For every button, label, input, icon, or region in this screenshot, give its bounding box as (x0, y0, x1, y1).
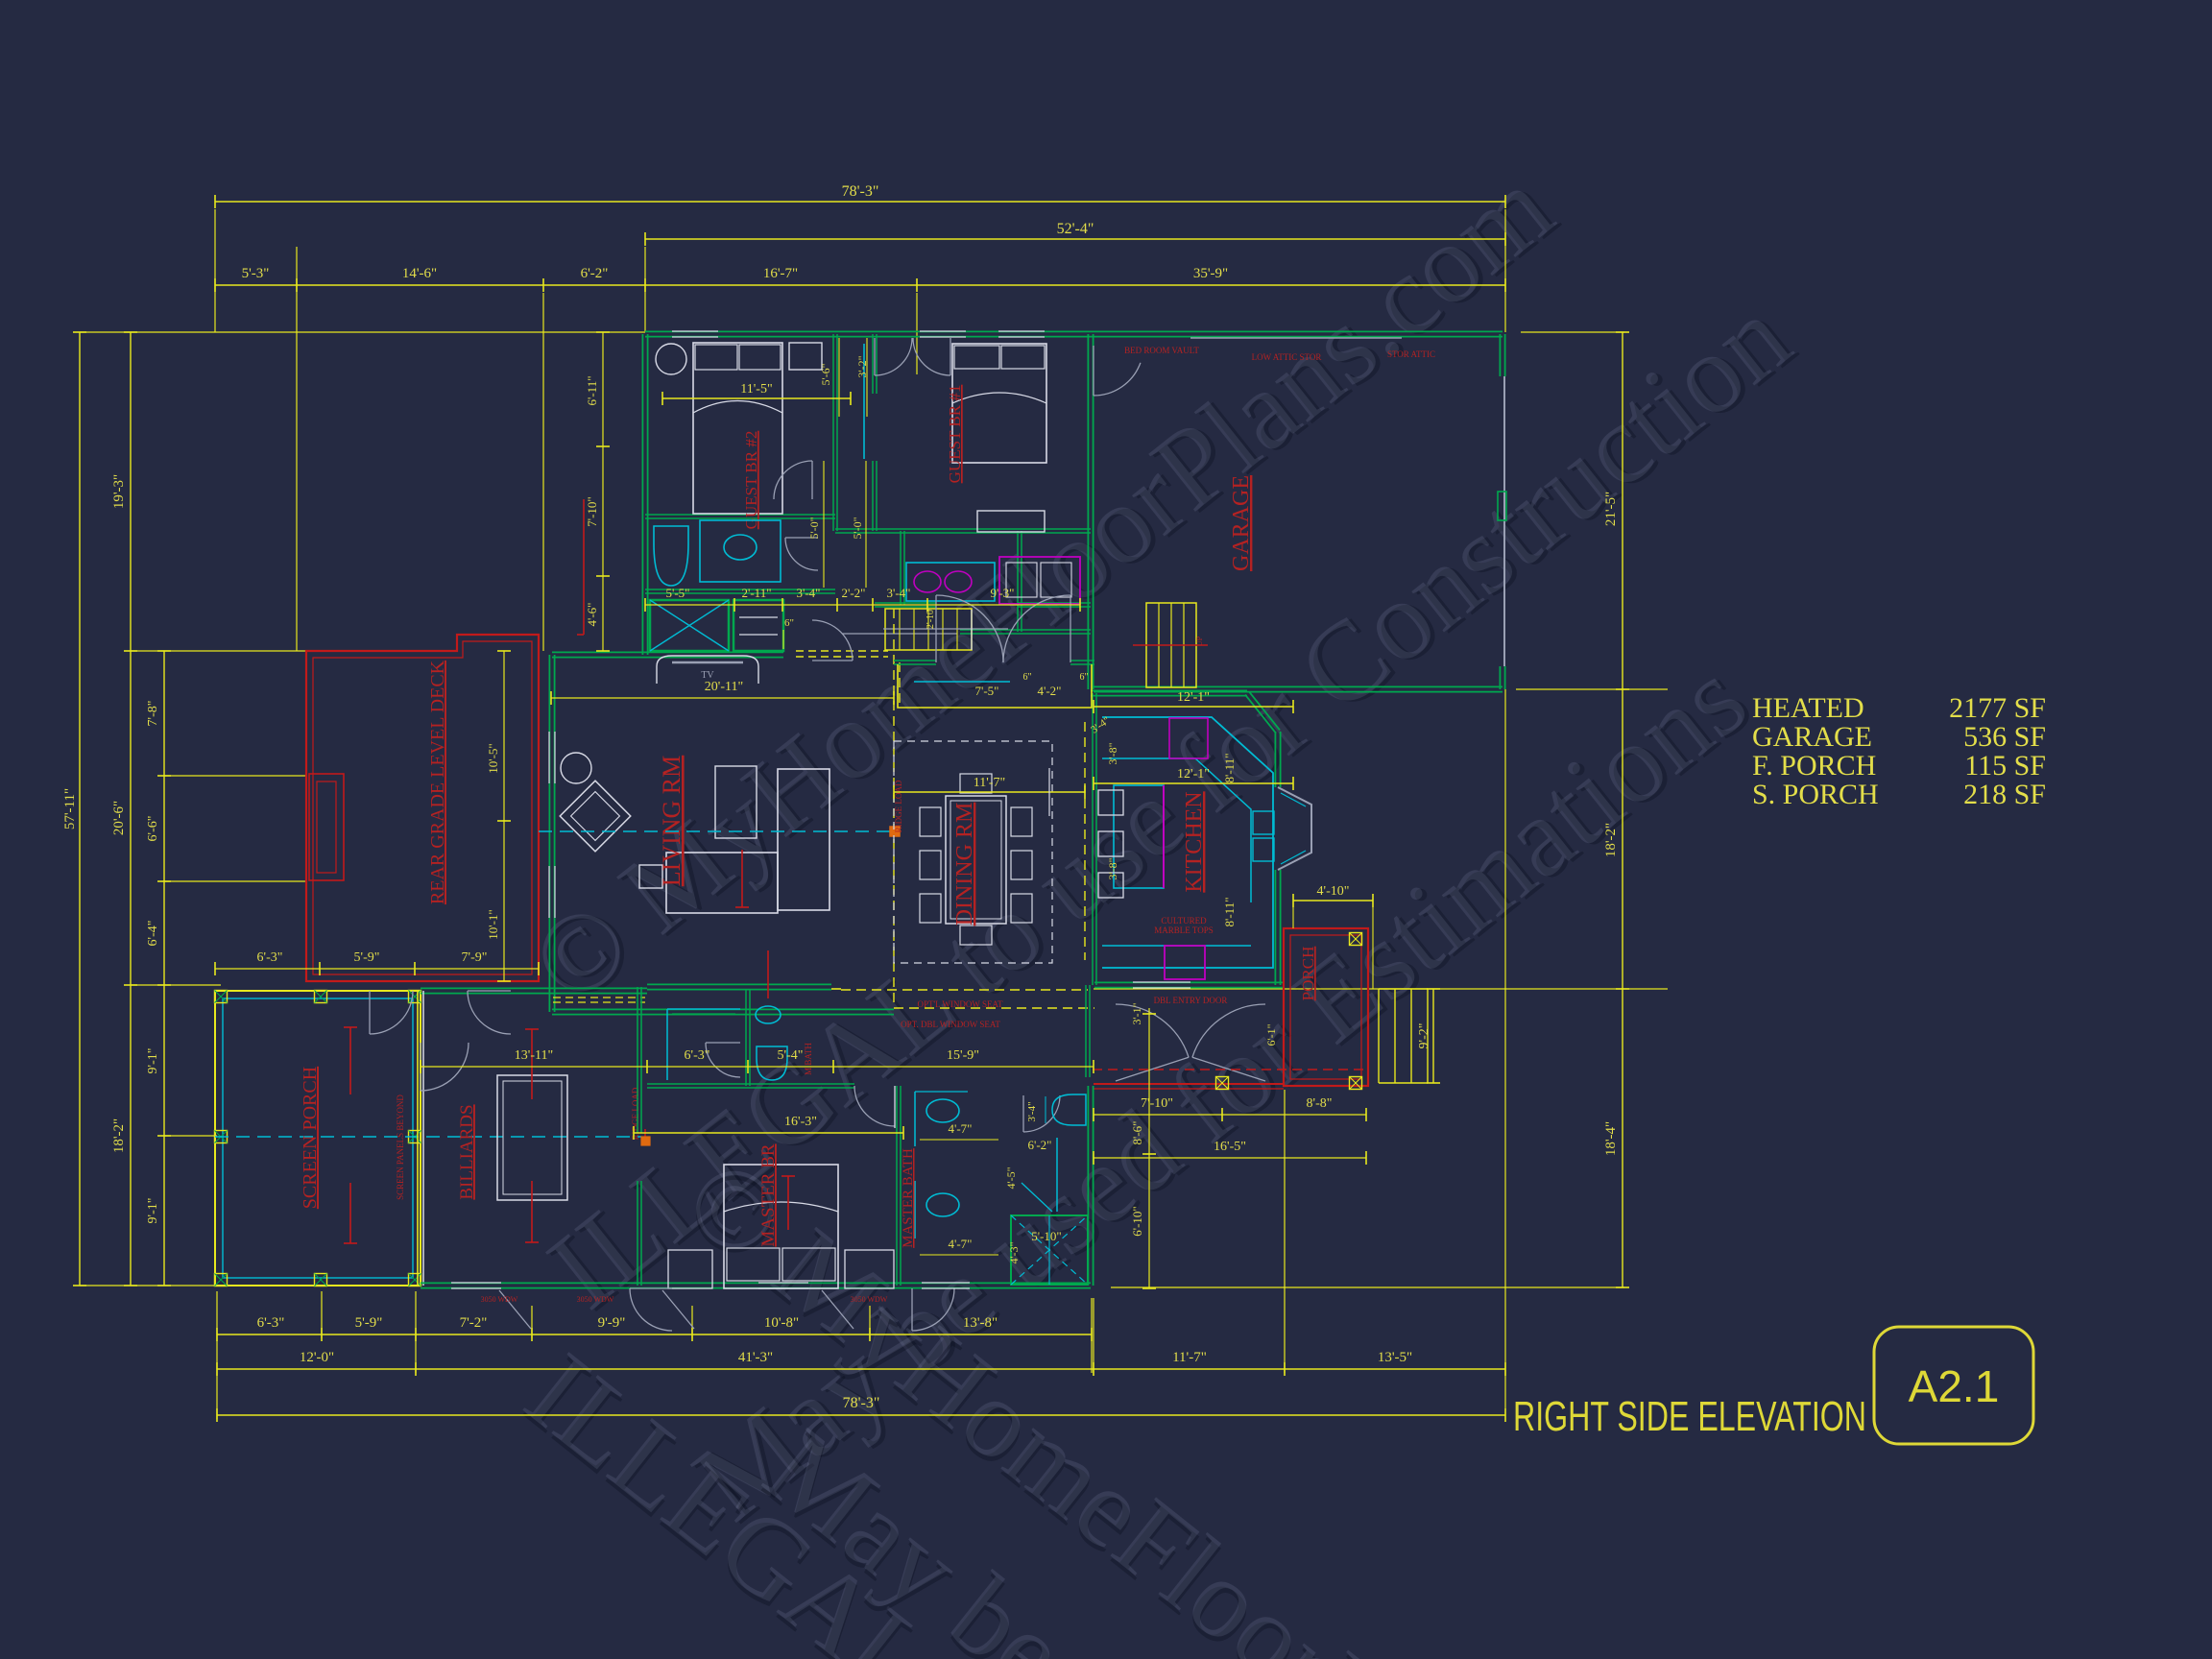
svg-text:7'-9": 7'-9" (462, 950, 488, 965)
svg-text:M.BATH: M.BATH (804, 1043, 813, 1075)
svg-text:6'-10": 6'-10" (1130, 1206, 1144, 1236)
svg-text:5'-10": 5'-10" (1031, 1229, 1061, 1243)
svg-text:2'-10": 2'-10" (926, 606, 936, 629)
svg-text:GARAGE: GARAGE (1752, 721, 1872, 753)
svg-text:41'-3": 41'-3" (738, 1350, 773, 1365)
svg-text:5'-5": 5'-5" (666, 586, 690, 600)
svg-text:UP: UP (1195, 636, 1204, 646)
svg-text:10'-1": 10'-1" (486, 909, 500, 939)
svg-text:8'-8": 8'-8" (1307, 1096, 1333, 1111)
svg-text:CULTURED: CULTURED (1161, 916, 1207, 926)
svg-text:A2.1: A2.1 (1909, 1361, 2000, 1411)
svg-text:6'-6": 6'-6" (146, 816, 160, 842)
svg-text:DINING RM: DINING RM (952, 803, 977, 926)
svg-text:16'-3": 16'-3" (784, 1115, 817, 1129)
svg-text:RIDGE LOAD: RIDGE LOAD (894, 780, 903, 832)
svg-text:10'-8": 10'-8" (764, 1315, 799, 1331)
svg-text:16'-7": 16'-7" (763, 266, 798, 281)
svg-text:3'-4": 3'-4" (1026, 1101, 1038, 1121)
svg-text:9'-1": 9'-1" (146, 1198, 160, 1224)
svg-text:9'-2": 9'-2" (1417, 1023, 1431, 1049)
svg-text:6'-4": 6'-4" (146, 921, 160, 947)
svg-text:4'-5": 4'-5" (1004, 1166, 1018, 1189)
svg-text:536 SF: 536 SF (1963, 721, 2046, 753)
svg-text:4'-6": 4'-6" (585, 603, 599, 627)
svg-text:PORCH: PORCH (1299, 947, 1317, 1001)
svg-text:218 SF: 218 SF (1963, 779, 2046, 810)
svg-text:11'-5": 11'-5" (740, 382, 772, 397)
svg-text:8'-11": 8'-11" (1222, 754, 1237, 783)
svg-text:OPT'L WINDOW SEAT: OPT'L WINDOW SEAT (918, 999, 1003, 1009)
svg-text:5'-3": 5'-3" (242, 266, 270, 281)
svg-text:SCREEN PORCH: SCREEN PORCH (300, 1067, 321, 1209)
svg-text:S. PORCH: S. PORCH (1752, 779, 1879, 810)
svg-text:12'-1": 12'-1" (1177, 767, 1210, 781)
svg-text:5'-0": 5'-0" (807, 517, 821, 539)
svg-text:18'-2": 18'-2" (111, 1118, 127, 1153)
svg-text:LIVING RM: LIVING RM (658, 756, 685, 887)
svg-text:6'-11": 6'-11" (585, 376, 599, 406)
svg-text:MARBLE TOPS: MARBLE TOPS (1154, 926, 1213, 935)
svg-text:RIDGE LOAD: RIDGE LOAD (631, 1087, 640, 1140)
svg-text:MASTER BR: MASTER BR (758, 1143, 779, 1246)
svg-text:7'-5": 7'-5" (975, 684, 999, 698)
svg-text:11'-7": 11'-7" (974, 776, 1005, 790)
svg-text:2'-2": 2'-2" (842, 586, 866, 600)
svg-text:5'-0": 5'-0" (851, 517, 864, 539)
svg-text:3'-1": 3'-1" (1130, 1002, 1143, 1024)
svg-text:GARAGE: GARAGE (1229, 475, 1254, 571)
svg-text:4'-7": 4'-7" (949, 1121, 973, 1136)
svg-text:57'-11": 57'-11" (62, 788, 78, 829)
svg-text:9'-3": 9'-3" (991, 586, 1015, 600)
svg-text:4'-3": 4'-3" (1007, 1241, 1021, 1263)
svg-text:3050 WDW: 3050 WDW (577, 1295, 614, 1304)
svg-text:6": 6" (784, 617, 794, 629)
svg-text:7'-10": 7'-10" (1141, 1096, 1173, 1111)
svg-text:19'-3": 19'-3" (111, 474, 127, 509)
svg-text:GUEST BR #1: GUEST BR #1 (946, 385, 964, 484)
svg-text:MASTER BATH: MASTER BATH (901, 1148, 916, 1248)
svg-text:10'-5": 10'-5" (486, 743, 500, 773)
svg-text:7'-8": 7'-8" (146, 701, 160, 727)
svg-text:78'-3": 78'-3" (842, 183, 879, 200)
svg-text:RIGHT SIDE ELEVATION: RIGHT SIDE ELEVATION (1513, 1393, 1866, 1440)
svg-text:18'-4": 18'-4" (1603, 1121, 1619, 1156)
svg-text:18'-2": 18'-2" (1603, 823, 1619, 857)
svg-text:21'-5": 21'-5" (1603, 492, 1619, 526)
svg-text:5'-9": 5'-9" (355, 1315, 383, 1331)
svg-text:REAR GRADE LEVEL DECK: REAR GRADE LEVEL DECK (427, 660, 448, 904)
svg-text:6'-3": 6'-3" (257, 1315, 285, 1331)
svg-text:9'-9": 9'-9" (598, 1315, 626, 1331)
svg-text:GUEST BR #2: GUEST BR #2 (742, 431, 760, 530)
svg-text:STOR ATTIC: STOR ATTIC (1387, 349, 1435, 359)
svg-text:20'-11": 20'-11" (705, 680, 743, 694)
svg-text:4'-7": 4'-7" (949, 1237, 973, 1251)
svg-text:DBL ENTRY DOOR: DBL ENTRY DOOR (1154, 996, 1228, 1005)
svg-text:4'-2": 4'-2" (1038, 684, 1062, 698)
svg-text:HEATED: HEATED (1752, 692, 1864, 724)
svg-text:9'-1": 9'-1" (146, 1048, 160, 1074)
svg-text:3'-4": 3'-4" (887, 586, 911, 600)
svg-text:35'-9": 35'-9" (1193, 266, 1228, 281)
svg-text:13'-8": 13'-8" (963, 1315, 998, 1331)
svg-text:8'-11": 8'-11" (1222, 898, 1237, 927)
svg-text:BED ROOM VAULT: BED ROOM VAULT (1124, 346, 1199, 355)
svg-text:15'-9": 15'-9" (947, 1048, 979, 1063)
svg-text:6'-2": 6'-2" (581, 266, 609, 281)
svg-text:16'-5": 16'-5" (1214, 1140, 1246, 1154)
svg-text:52'-4": 52'-4" (1057, 221, 1094, 237)
svg-text:5'-4": 5'-4" (778, 1048, 804, 1063)
svg-text:OPT. DBL WINDOW SEAT: OPT. DBL WINDOW SEAT (901, 1020, 1000, 1029)
svg-text:115 SF: 115 SF (1964, 750, 2046, 781)
svg-text:KITCHEN: KITCHEN (1182, 791, 1207, 892)
svg-text:LOW ATTIC STOR: LOW ATTIC STOR (1252, 352, 1322, 362)
svg-text:5'-6": 5'-6" (819, 363, 832, 385)
svg-text:6'-3": 6'-3" (685, 1048, 710, 1063)
svg-text:3'-8": 3'-8" (1106, 742, 1119, 764)
svg-text:3050 WDW: 3050 WDW (851, 1295, 888, 1304)
svg-text:12'-0": 12'-0" (300, 1350, 334, 1365)
svg-text:11'-7": 11'-7" (1172, 1350, 1207, 1365)
svg-text:13'-5": 13'-5" (1378, 1350, 1412, 1365)
svg-text:BILLIARDS: BILLIARDS (457, 1104, 477, 1199)
svg-text:3'-8": 3'-8" (1106, 857, 1119, 879)
svg-text:3'-4": 3'-4" (797, 586, 821, 600)
svg-text:6": 6" (1022, 672, 1031, 683)
svg-text:7'-10": 7'-10" (585, 496, 599, 526)
svg-text:14'-6": 14'-6" (402, 266, 437, 281)
svg-text:6'-3": 6'-3" (257, 950, 283, 965)
svg-text:7'-2": 7'-2" (460, 1315, 488, 1331)
svg-text:2177 SF: 2177 SF (1949, 692, 2046, 724)
svg-text:3050 WDW: 3050 WDW (481, 1295, 518, 1304)
svg-text:F. PORCH: F. PORCH (1752, 750, 1876, 781)
svg-text:4'-10": 4'-10" (1317, 884, 1350, 899)
svg-text:SCREEN PANELS BEYOND: SCREEN PANELS BEYOND (396, 1094, 405, 1200)
svg-text:20'-6": 20'-6" (111, 801, 127, 835)
svg-text:6": 6" (1079, 672, 1088, 683)
svg-text:2'-11": 2'-11" (742, 586, 772, 600)
svg-text:6'-1": 6'-1" (1264, 1023, 1278, 1046)
svg-text:5'-9": 5'-9" (354, 950, 380, 965)
svg-text:78'-3": 78'-3" (843, 1395, 880, 1411)
svg-text:13'-11": 13'-11" (515, 1048, 553, 1063)
svg-text:6'-2": 6'-2" (1028, 1138, 1052, 1152)
svg-text:12'-1": 12'-1" (1177, 690, 1210, 705)
svg-text:8'-6": 8'-6" (1130, 1121, 1144, 1145)
